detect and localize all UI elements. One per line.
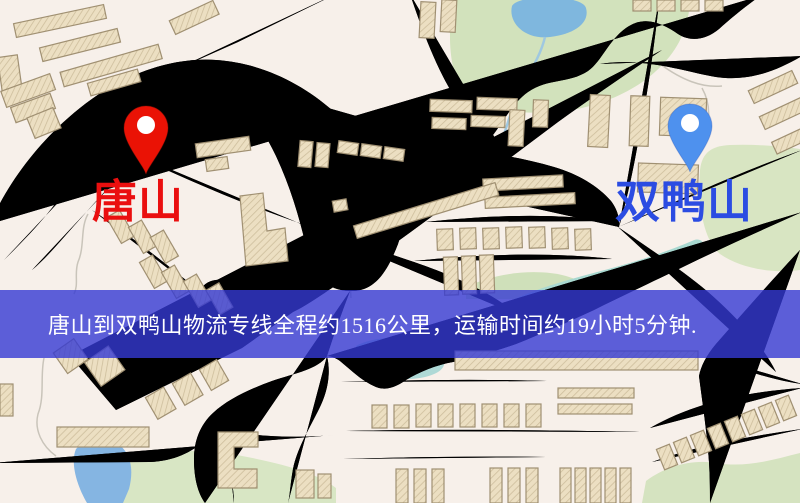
route-info-text: 唐山到双鸭山物流专线全程约1516公里，运输时间约19小时5分钟. <box>0 308 697 340</box>
origin-city-label: 唐山 <box>92 180 184 225</box>
route-info-banner: 唐山到双鸭山物流专线全程约1516公里，运输时间约19小时5分钟. <box>0 290 800 358</box>
destination-city-label: 双鸭山 <box>615 180 753 225</box>
map-screenshot: 唐山 双鸭山 唐山到双鸭山物流专线全程约1516公里，运输时间约19小时5分钟. <box>0 0 800 503</box>
map-image <box>0 0 800 503</box>
